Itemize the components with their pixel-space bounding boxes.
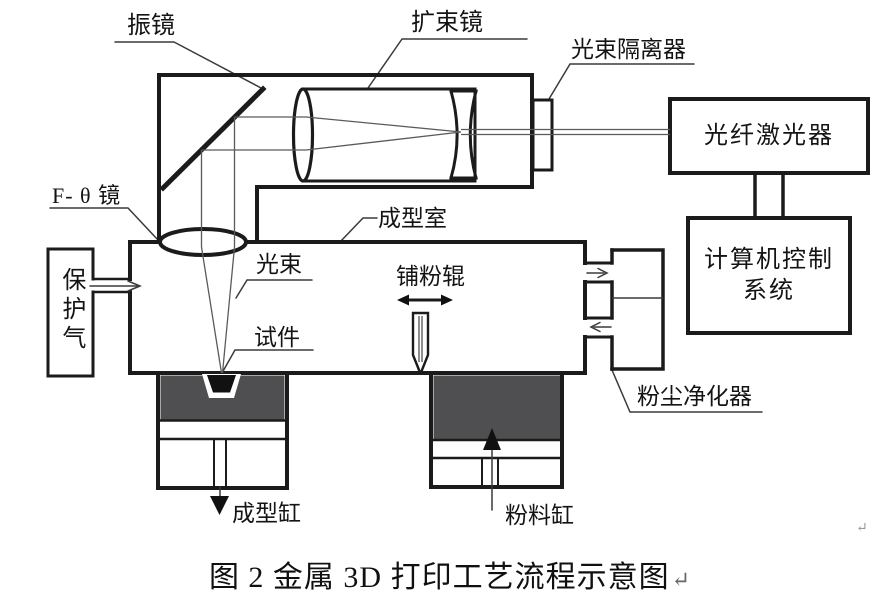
label-computer-control-line1: 计算机控制 [704,245,834,276]
gas-inlet-arrow [90,281,140,291]
label-dust-purifier: 粉尘净化器 [637,384,752,410]
label-galvo-mirror: 振镜 [127,13,175,40]
figure-caption: 图 2 金属 3D 打印工艺流程示意图↵ [140,552,760,596]
powder-fill [434,376,561,441]
purifier-flow-arrows [587,269,611,332]
diagram-canvas: 振镜 扩束镜 光束隔离器 光纤激光器 计算机控制 系统 F- θ 镜 成型室 光… [0,0,890,600]
f-theta-lens-shape [160,229,246,255]
figure-caption-text: 图 2 金属 3D 打印工艺流程示意图 [209,561,670,594]
caption-paragraph-mark-icon: ↵ [672,567,691,592]
dust-purifier-box [585,250,663,369]
convex-lens [294,89,313,181]
label-computer-control-line2: 系统 [743,276,795,307]
label-light-beam: 光束 [256,252,302,278]
label-beam-expander: 扩束镜 [411,10,483,37]
label-beam-isolator: 光束隔离器 [571,37,686,63]
label-powder-cylinder: 粉料缸 [505,503,574,529]
forming-piston-rod [214,440,226,487]
label-f-theta-lens: F- θ 镜 [52,184,121,209]
label-powder-roller: 铺粉辊 [396,264,465,290]
laser-control-connector [755,173,783,218]
powder-cylinder [431,375,562,510]
label-fiber-laser: 光纤激光器 [670,99,868,173]
label-protective-gas: 保护气 [57,267,84,354]
roller-travel-arrow [397,295,453,306]
roller-blade [413,313,428,373]
forming-down-arrow [210,487,229,515]
label-computer-control: 计算机控制 系统 [688,218,850,333]
forming-cylinder [158,374,287,515]
label-specimen: 试件 [254,325,300,351]
powder-piston-rod [482,459,498,486]
stray-paragraph-mark-icon: ↵ [856,520,868,537]
label-forming-cylinder: 成型缸 [232,501,301,527]
label-forming-chamber: 成型室 [378,206,447,232]
galvo-mirror [163,89,263,188]
forming-chamber-walls [130,242,585,373]
powder-roller-assembly [397,295,453,373]
beam-expander-tube [294,89,477,181]
